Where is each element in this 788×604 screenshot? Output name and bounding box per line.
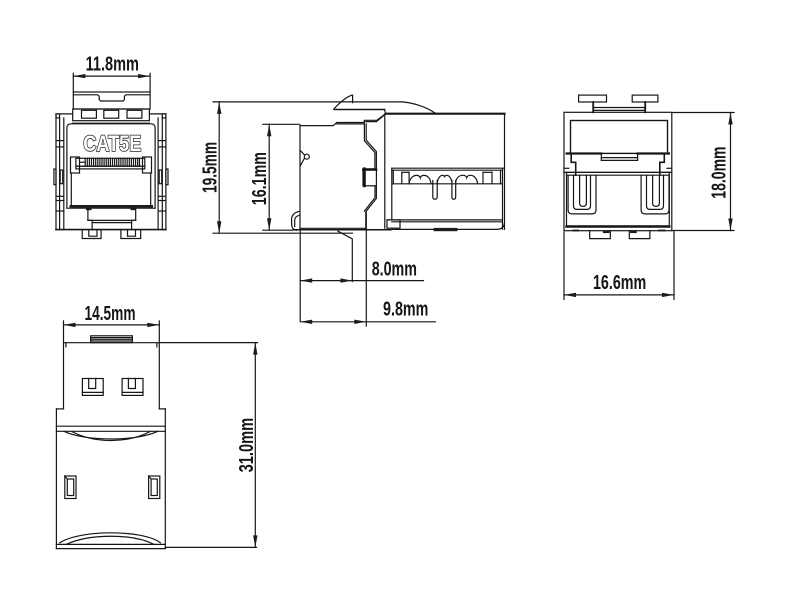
svg-text:11.8mm: 11.8mm: [86, 54, 139, 76]
svg-text:CAT5E: CAT5E: [83, 131, 141, 156]
svg-text:31.0mm: 31.0mm: [236, 418, 258, 473]
svg-text:16.1mm: 16.1mm: [249, 152, 271, 205]
svg-text:14.5mm: 14.5mm: [85, 303, 136, 325]
svg-text:9.8mm: 9.8mm: [383, 299, 428, 321]
svg-text:16.6mm: 16.6mm: [593, 272, 646, 294]
svg-text:19.5mm: 19.5mm: [199, 142, 221, 193]
svg-text:18.0mm: 18.0mm: [708, 147, 730, 199]
svg-text:8.0mm: 8.0mm: [372, 258, 417, 280]
